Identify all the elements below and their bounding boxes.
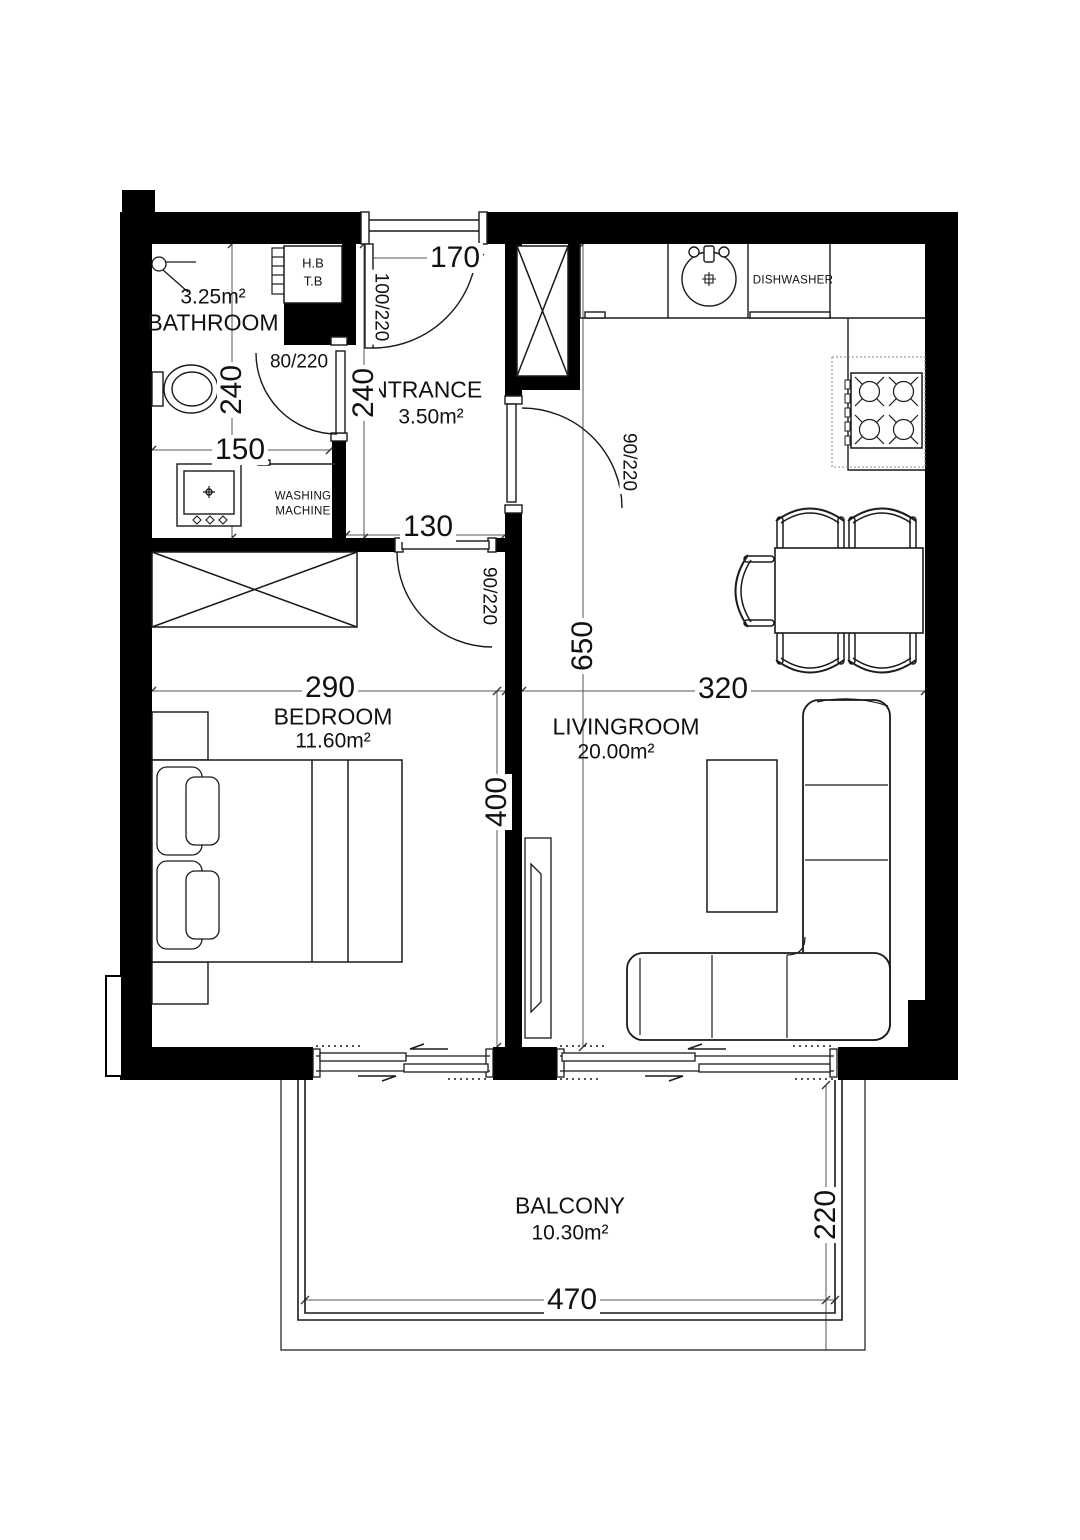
- wardrobe: [152, 552, 357, 627]
- bedroom-name-label: BEDROOM: [274, 706, 393, 729]
- bathroom-area-label: 3.25m²: [180, 287, 245, 308]
- bathroom-name-label: BATHROOM: [147, 312, 278, 335]
- livingroom-door-size-label: 90/220: [620, 430, 639, 494]
- washing-machine-label-1: WASHING: [275, 491, 332, 503]
- dim-130-label: 130: [400, 512, 456, 542]
- sliding-door-bedroom: [313, 1044, 493, 1081]
- floor-plan-drawing: [0, 0, 1080, 1540]
- bathroom-door-size-label: 80/220: [267, 353, 331, 372]
- livingroom-area-label: 20.00m²: [577, 742, 654, 763]
- dim-240-bathroom-label: 240: [217, 362, 247, 418]
- exterior-pillar: [106, 976, 122, 1076]
- dim-170-label: 170: [427, 243, 483, 273]
- dim-150-label: 150: [212, 435, 268, 465]
- dim-320-label: 320: [695, 674, 751, 704]
- entrance-door-size-label: 100/220: [372, 270, 391, 345]
- closet-tb-label: T.B: [304, 275, 323, 288]
- shaft: [517, 246, 568, 376]
- towel-radiator: [272, 248, 285, 294]
- sliding-door-tracks-dotted: [316, 1046, 834, 1079]
- dim-290-label: 290: [302, 673, 358, 703]
- balcony-area-label: 10.30m²: [531, 1223, 608, 1244]
- slide-arrow-right: [645, 1076, 683, 1081]
- coffee-table: [707, 760, 777, 912]
- slide-arrow-left: [688, 1044, 726, 1049]
- toilet: [152, 365, 218, 413]
- tv-unit: [525, 838, 551, 1038]
- slide-arrow-right: [358, 1076, 396, 1081]
- stove: [832, 357, 925, 467]
- dim-650-label: 650: [568, 618, 598, 674]
- floor-plan: 3.25m² BATHROOM H.B T.B 170 100/220 ENTR…: [0, 0, 1080, 1540]
- closet-hb-label: H.B: [302, 257, 324, 270]
- vanity-sink: [177, 464, 241, 526]
- bedroom-door-size-label: 90/220: [480, 564, 499, 628]
- balcony-name-label: BALCONY: [515, 1195, 625, 1218]
- dim-470-label: 470: [544, 1285, 600, 1315]
- bed: [152, 760, 402, 962]
- dim-220-label: 220: [811, 1187, 841, 1243]
- dim-400-label: 400: [482, 774, 512, 830]
- livingroom-name-label: LIVINGROOM: [553, 716, 700, 739]
- kitchen-sink: [682, 246, 736, 306]
- washing-machine-niche: [258, 460, 337, 465]
- bedroom-area-label: 11.60m²: [295, 731, 370, 752]
- dishwasher-label: DISHWASHER: [753, 275, 834, 287]
- livingroom-door: [505, 396, 622, 513]
- entrance-area-label: 3.50m²: [398, 407, 463, 428]
- dining-table: [775, 548, 923, 633]
- dim-240-entrance-label: 240: [349, 365, 379, 421]
- washing-machine-label-2: MACHINE: [275, 506, 330, 518]
- slide-arrow-left: [410, 1044, 448, 1049]
- sliding-door-livingroom: [557, 1044, 837, 1081]
